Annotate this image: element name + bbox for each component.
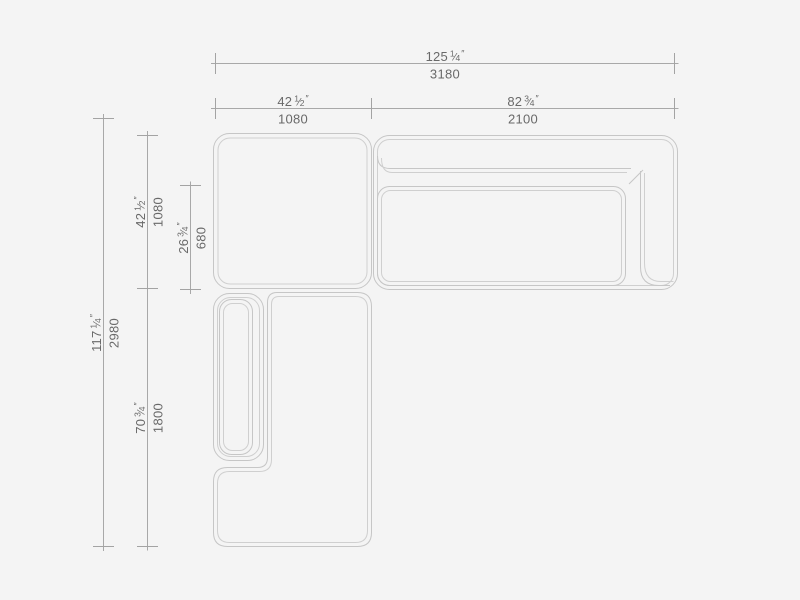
inch-value: 263⁄4″ bbox=[175, 222, 186, 253]
inch-value: 1171⁄4″ bbox=[88, 314, 99, 352]
chaise-seat-outline bbox=[214, 293, 372, 547]
dim-label-sofa-width: 823⁄4″ 2100 bbox=[507, 93, 538, 124]
backrest-edge bbox=[378, 156, 632, 169]
diagram-canvas: 1251⁄4″ 3180 421⁄2″ 1080 823⁄4″ 2100 117… bbox=[0, 0, 800, 600]
corner-module-inner-seam bbox=[218, 138, 367, 284]
inch-value: 703⁄4″ bbox=[132, 402, 143, 433]
mm-value: 1080 bbox=[152, 197, 163, 227]
sofa-module-outline bbox=[374, 136, 678, 290]
mm-value: 1080 bbox=[278, 113, 308, 124]
mm-value: 2980 bbox=[108, 317, 119, 347]
mm-value: 2100 bbox=[508, 113, 538, 124]
chaise-armrest-outline bbox=[214, 294, 264, 461]
sofa-module bbox=[374, 136, 678, 290]
sofa-module-inner-seam bbox=[378, 140, 674, 286]
mm-value: 1800 bbox=[152, 402, 163, 432]
mm-value: 3180 bbox=[430, 68, 460, 79]
dim-label-corner-depth: 421⁄2″ 1080 bbox=[132, 196, 163, 227]
backrest-edge-seam bbox=[382, 158, 628, 173]
armrest-right-edge-seam bbox=[645, 173, 674, 282]
dim-label-seat-depth: 263⁄4″ 680 bbox=[175, 222, 206, 253]
chaise-armrest-cushion bbox=[220, 300, 253, 455]
inch-value: 1251⁄4″ bbox=[426, 48, 465, 59]
sofa-seat-cushion-seam bbox=[382, 191, 622, 282]
inch-value: 823⁄4″ bbox=[507, 93, 538, 104]
corner-module bbox=[214, 134, 372, 289]
inch-value: 421⁄2″ bbox=[132, 196, 143, 227]
corner-module-outline bbox=[214, 134, 372, 289]
dim-label-chaise-depth: 703⁄4″ 1800 bbox=[132, 402, 163, 433]
chaise-armrest-cushion-seam bbox=[224, 304, 249, 451]
chaise-seat-inner-seam bbox=[218, 297, 368, 543]
dim-label-overall-width: 1251⁄4″ 3180 bbox=[426, 48, 465, 79]
chaise-module bbox=[214, 293, 372, 547]
mm-value: 680 bbox=[195, 227, 206, 250]
dim-label-corner-width: 421⁄2″ 1080 bbox=[277, 93, 308, 124]
sofa-line-drawing bbox=[0, 0, 800, 600]
dimension-lines bbox=[93, 53, 679, 551]
inch-value: 421⁄2″ bbox=[277, 93, 308, 104]
sofa-seat-cushion bbox=[378, 187, 626, 286]
dim-label-overall-depth: 1171⁄4″ 2980 bbox=[88, 314, 119, 352]
